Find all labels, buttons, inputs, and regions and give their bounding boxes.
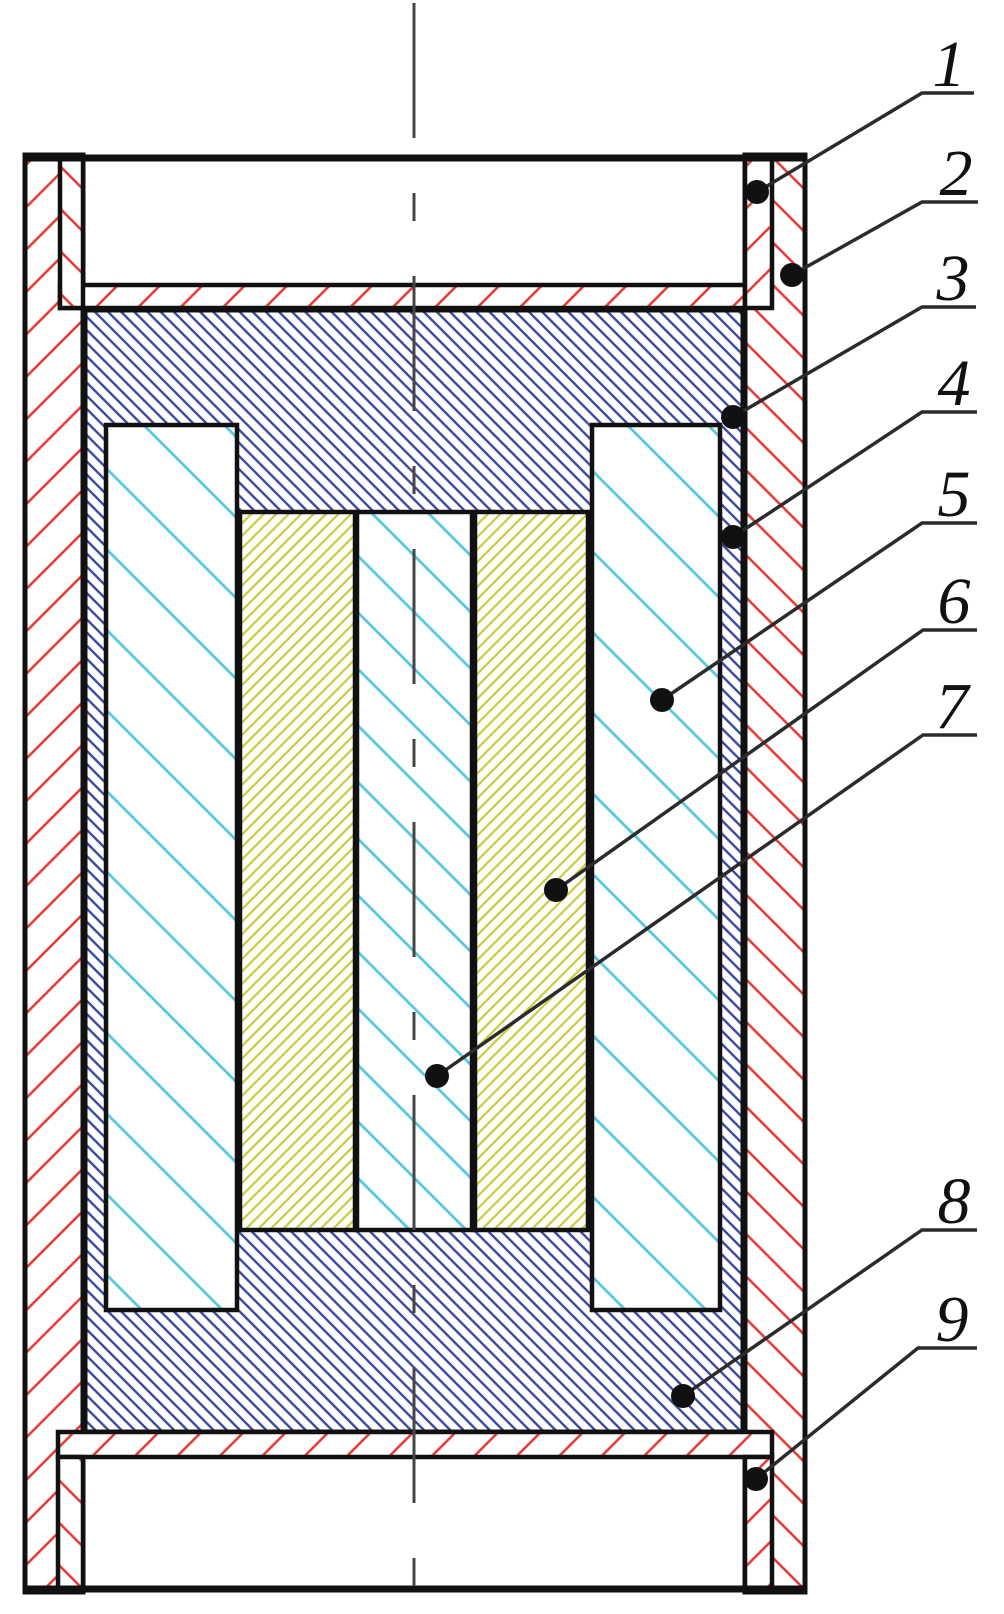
figure-container: 1 2 3 4 5 6 7 8 9 bbox=[0, 0, 1004, 1614]
leader-dot-5 bbox=[650, 688, 674, 712]
diagram-canvas: 1 2 3 4 5 6 7 8 9 bbox=[0, 0, 1004, 1614]
outer-shell-left-wall bbox=[25, 155, 83, 1592]
part-number-8: 8 bbox=[938, 1165, 971, 1238]
left-insert-column bbox=[240, 512, 355, 1230]
top-cap-right-wall bbox=[745, 155, 772, 308]
left-side-column bbox=[106, 425, 237, 1310]
leader-dot-8 bbox=[671, 1384, 695, 1408]
leader-dot-9 bbox=[744, 1467, 768, 1491]
part-number-4: 4 bbox=[938, 347, 971, 420]
leader-dot-3 bbox=[721, 405, 745, 429]
part-number-3: 3 bbox=[936, 242, 970, 315]
leader-dot-7 bbox=[425, 1064, 449, 1088]
part-labels: 1 2 3 4 5 6 7 8 9 bbox=[933, 28, 973, 1356]
outer-shell-right-wall bbox=[745, 155, 805, 1592]
part-number-2: 2 bbox=[940, 137, 973, 210]
bottom-cap-left-wall bbox=[58, 1457, 83, 1590]
leader-dot-4 bbox=[721, 525, 745, 549]
part-number-6: 6 bbox=[938, 565, 971, 638]
leader-dot-1 bbox=[745, 180, 769, 204]
top-cap-left-wall bbox=[60, 155, 83, 308]
right-side-column bbox=[592, 425, 720, 1310]
part-number-5: 5 bbox=[938, 458, 971, 531]
leader-dot-6 bbox=[544, 878, 568, 902]
part-number-7: 7 bbox=[936, 670, 972, 743]
part-number-1: 1 bbox=[933, 28, 966, 101]
part-number-9: 9 bbox=[936, 1283, 969, 1356]
leader-dot-2 bbox=[780, 263, 804, 287]
right-insert-column bbox=[475, 512, 588, 1230]
top-cap-plate bbox=[60, 285, 745, 308]
